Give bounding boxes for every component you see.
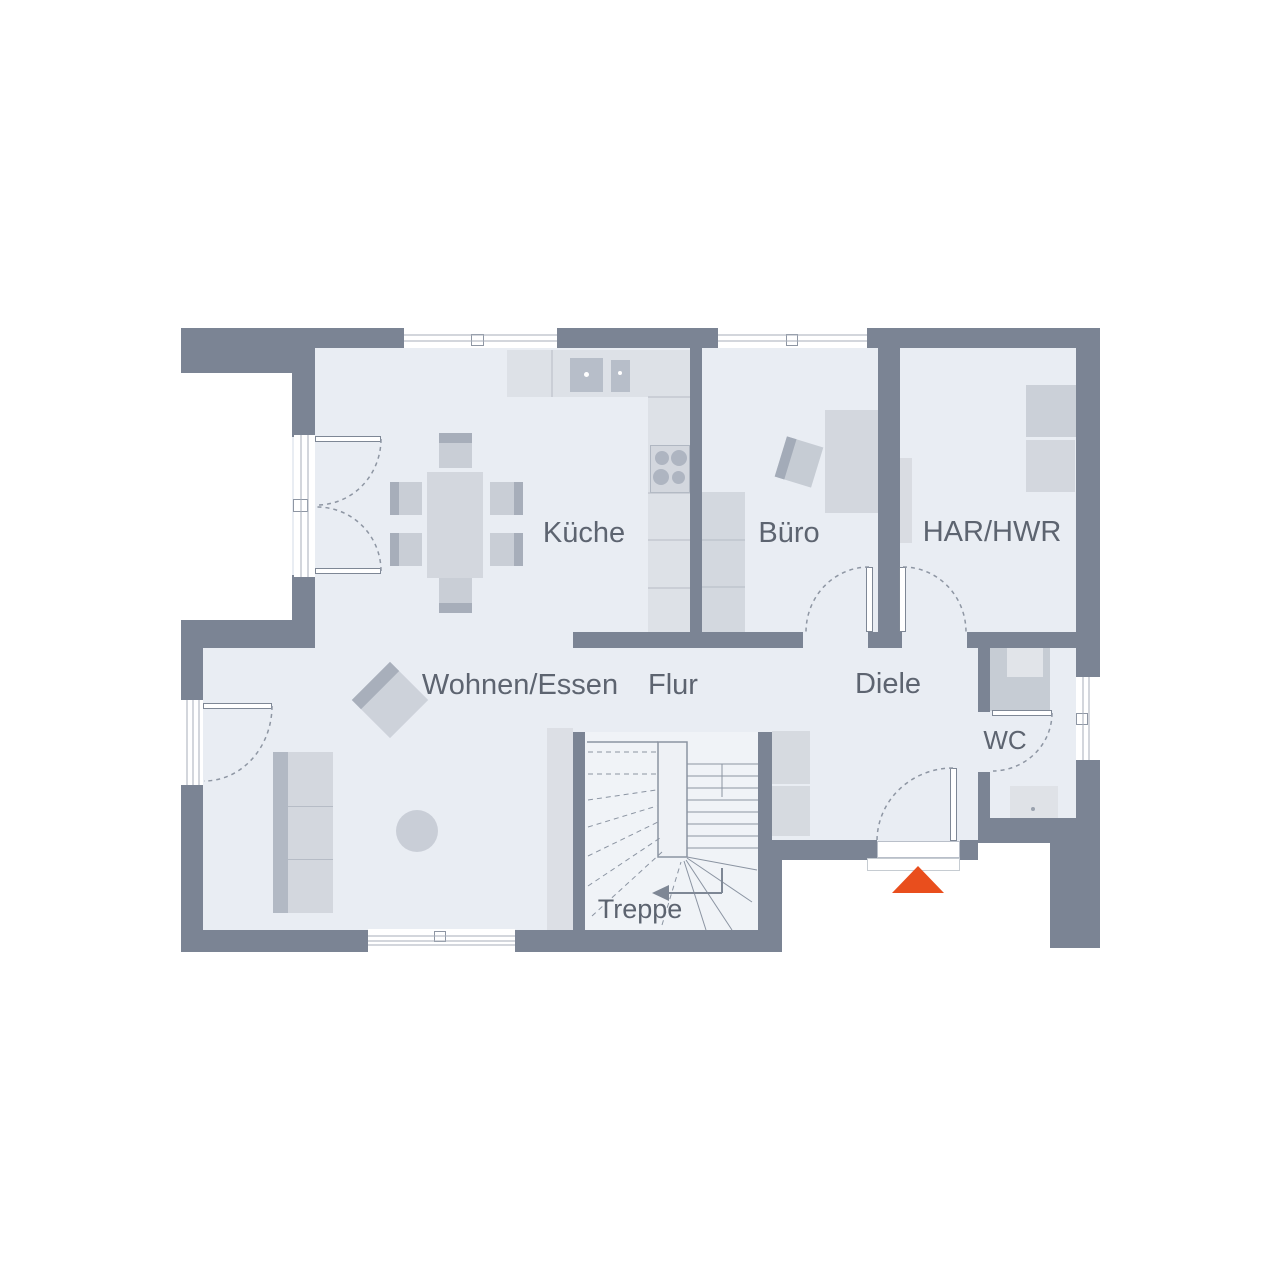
plan-linework xyxy=(0,0,1280,1280)
room-label-buero: Büro xyxy=(719,518,859,550)
floorplan-canvas: Küche Büro HAR/HWR Wohnen/Essen Flur Die… xyxy=(0,0,1280,1280)
room-label-har-hwr: HAR/HWR xyxy=(902,517,1082,549)
room-label-wohnen-essen: Wohnen/Essen xyxy=(420,670,620,702)
entrance-marker xyxy=(892,866,944,893)
room-label-wc: WC xyxy=(965,726,1045,755)
door-swing-arcs xyxy=(204,439,1052,841)
window-glazing-lines xyxy=(187,335,1089,945)
counter-segment-lines xyxy=(552,350,745,588)
room-label-flur: Flur xyxy=(623,670,723,702)
room-label-kueche: Küche xyxy=(514,518,654,550)
room-label-treppe: Treppe xyxy=(580,895,700,925)
room-label-diele: Diele xyxy=(838,669,938,701)
